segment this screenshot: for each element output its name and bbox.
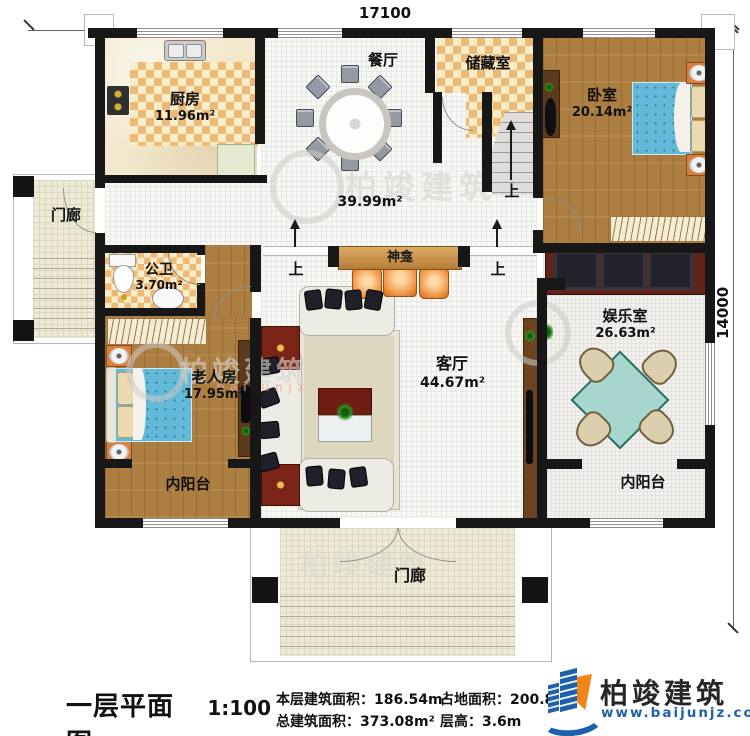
plant-icon (544, 82, 554, 92)
shrine-altar: 神龛 (338, 246, 462, 270)
total-area-value: 373.08m² (360, 714, 435, 730)
wall (250, 318, 261, 528)
window (143, 518, 228, 528)
room-label-storage: 储藏室 (443, 56, 533, 72)
plan-title: 一层平面图 (66, 686, 195, 736)
nightstand (106, 345, 132, 367)
floor-drain (121, 294, 127, 300)
room-label-game: 娱乐室 (575, 309, 675, 325)
window (137, 28, 223, 38)
storey-height-info: 层高：3.6m (440, 711, 521, 731)
dimension-top-value: 17100 (320, 4, 450, 22)
room-label-elder: 老人房 (168, 370, 260, 386)
dining-chair (296, 109, 314, 127)
room-label-porch-left: 门廊 (36, 208, 96, 224)
porch-pillar (13, 320, 34, 341)
plan-scale: 1:100 (207, 696, 271, 720)
tv-icon (526, 390, 533, 464)
bed-blanket-fold (674, 83, 690, 152)
dimension-tick (23, 19, 34, 30)
dining-table (319, 88, 391, 160)
sofa-pillow (304, 289, 324, 311)
threshold (470, 246, 537, 256)
elder-room-wardrobe (107, 318, 207, 345)
wall (705, 28, 715, 528)
titleblock: 一层平面图 1:100 (66, 686, 271, 736)
bottom-porch-steps (280, 596, 515, 656)
window (705, 343, 715, 425)
bedroom-monitor (545, 98, 556, 136)
wall (425, 38, 435, 93)
wall (458, 246, 470, 267)
room-area-living: 44.67m² (405, 376, 500, 391)
kitchen-stove (107, 86, 129, 115)
stair-up-label: 上 (499, 184, 525, 200)
room-label-porch-bottom: 门廊 (372, 568, 448, 585)
room-label-dining: 餐厅 (348, 53, 418, 69)
company-website: www.baijunjz.com (601, 705, 750, 721)
wall (537, 278, 547, 518)
wall (533, 243, 715, 253)
wall (255, 38, 265, 144)
total-area-info: 总建筑面积：373.08m² (276, 711, 435, 731)
company-logo-icon (540, 668, 598, 730)
stair-arrow-head (506, 120, 516, 130)
floor-area-value: 186.54m² (374, 692, 449, 708)
step-up-arrow (294, 229, 296, 247)
sofa-pillow (259, 421, 280, 440)
window (590, 518, 663, 528)
threshold (263, 246, 328, 256)
step-up-arrow-head (290, 219, 300, 229)
room-area-bathroom: 3.70m² (125, 279, 193, 292)
wall (533, 38, 543, 198)
wall (677, 459, 715, 469)
room-label-balcony-right: 内阳台 (598, 475, 688, 491)
floor-area-info: 本层建筑面积：186.54m² (276, 689, 449, 709)
bedroom-wardrobe (610, 216, 707, 242)
wall (433, 92, 442, 163)
wall (95, 308, 205, 316)
step-up-label: 上 (487, 262, 509, 278)
sofa-cushion (601, 251, 646, 290)
porch-pillar (252, 577, 278, 603)
sofa-pillow (363, 289, 383, 312)
shrine-stool (419, 267, 449, 299)
sofa-pillow (349, 466, 369, 488)
step-up-label: 上 (285, 262, 307, 278)
plant-icon (524, 330, 536, 342)
wall (328, 246, 339, 267)
land-area-label: 占地面积： (440, 692, 510, 708)
door-opening (340, 518, 456, 528)
sofa-pillow (305, 465, 324, 486)
hall-area-label: 39.99m² (325, 195, 415, 210)
room-label-kitchen: 厨房 (135, 92, 235, 108)
total-area-label: 总建筑面积： (276, 714, 360, 730)
room-area-game: 26.63m² (578, 327, 673, 341)
step-up-arrow-head (492, 219, 502, 229)
storey-height-value: 3.6m (482, 714, 521, 730)
room-area-kitchen: 11.96m² (135, 110, 235, 124)
bed-pillow (117, 372, 134, 405)
wall (95, 28, 105, 528)
land-area-info: 占地面积：200.8 (440, 689, 554, 709)
door-opening (95, 188, 105, 233)
wall (543, 459, 582, 469)
dimension-right-value: 14000 (714, 268, 734, 358)
wall (482, 92, 492, 192)
kitchen-counter (217, 144, 255, 178)
porch-pillar (522, 577, 548, 603)
left-porch-steps (33, 258, 95, 338)
room-label-balcony-left: 内阳台 (143, 477, 233, 493)
wall (537, 278, 565, 290)
sofa-pillow (327, 468, 346, 489)
porch-pillar (13, 176, 34, 197)
step-up-arrow (496, 229, 498, 247)
plant-icon (336, 403, 354, 421)
bed-pillow (117, 406, 134, 438)
storey-height-label: 层高： (440, 714, 482, 730)
window (278, 28, 342, 38)
bed-blanket-fold (133, 368, 146, 440)
wall (250, 245, 261, 292)
wall (228, 459, 253, 468)
floor-area-label: 本层建筑面积： (276, 692, 374, 708)
sofa-pillow (324, 288, 343, 310)
window (583, 28, 655, 38)
stair-direction-arrow (510, 130, 512, 180)
wall (95, 459, 132, 468)
room-label-living: 客厅 (408, 356, 496, 373)
room-label-bathroom: 公卫 (125, 263, 193, 278)
room-area-bedroom: 20.14m² (558, 106, 646, 120)
window (452, 28, 522, 38)
hall-left-floor (105, 181, 261, 247)
sofa-cushion (648, 251, 693, 290)
sofa-pillow (344, 289, 363, 310)
wall (95, 175, 267, 183)
wall (95, 245, 205, 253)
floor-plan-canvas: 17100 14000 上 (0, 0, 750, 736)
room-area-elder: 17.95m² (168, 388, 260, 402)
kitchen-sink (164, 40, 206, 61)
room-label-bedroom: 卧室 (558, 88, 646, 104)
sofa-pillow (258, 356, 281, 376)
